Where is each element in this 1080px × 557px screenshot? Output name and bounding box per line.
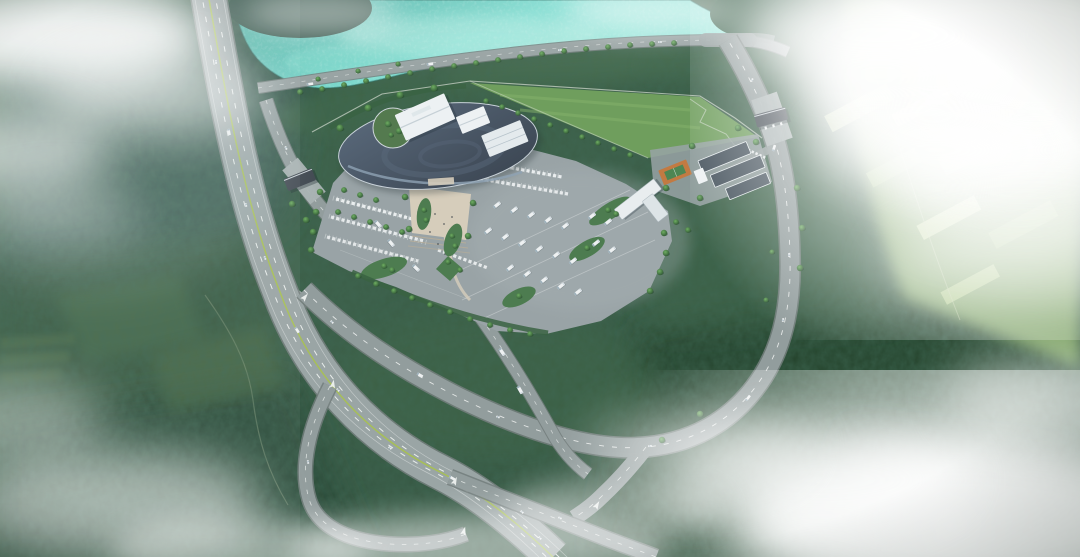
vignette: [0, 0, 1080, 557]
rendering-canvas: Aerial rendering of a mountain expresswa…: [0, 0, 1080, 557]
aerial-rendering: Aerial rendering of a mountain expresswa…: [0, 0, 1080, 557]
